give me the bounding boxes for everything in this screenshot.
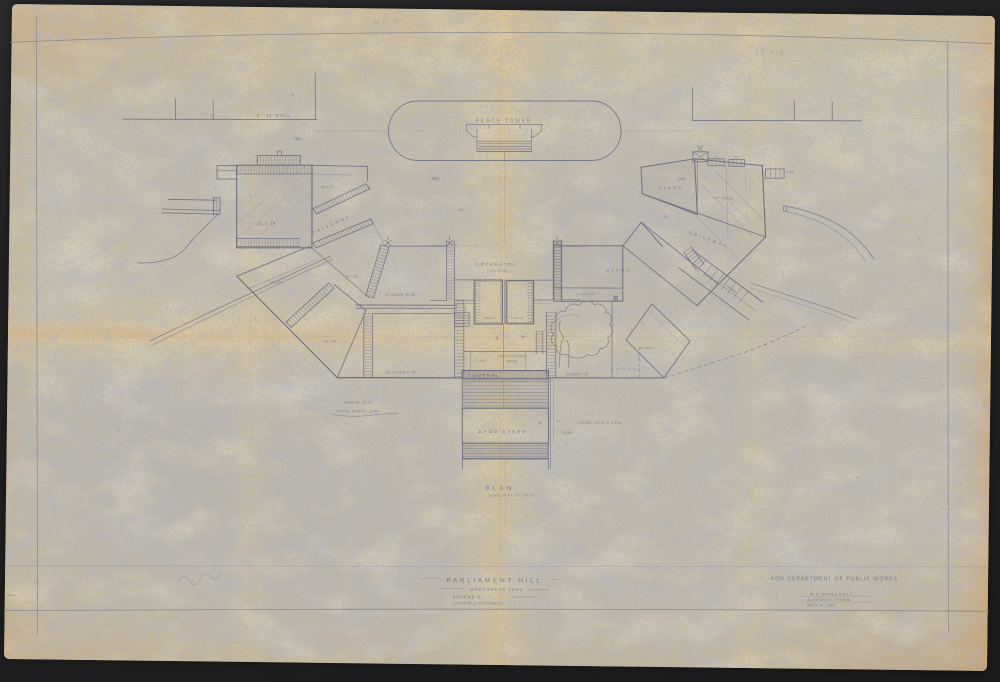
- svg-text:46 ELGIN ST. OTTAWA: 46 ELGIN ST. OTTAWA: [807, 598, 851, 602]
- svg-text:26': 26': [538, 421, 543, 425]
- svg-text:LINE OF EXISTING: LINE OF EXISTING: [498, 355, 527, 359]
- svg-text:72 x 12: 72 x 12: [475, 359, 487, 363]
- svg-text:DRIVEWAY: DRIVEWAY: [688, 230, 729, 250]
- svg-text:TRELLIS: TRELLIS: [511, 316, 523, 320]
- svg-text:BAND STAND: BAND STAND: [478, 429, 527, 434]
- svg-text:700: 700: [293, 137, 301, 142]
- svg-text:TOTAL SEATS 6384: TOTAL SEATS 6384: [578, 420, 623, 425]
- svg-text:10 x 28: 10 x 28: [270, 281, 282, 285]
- svg-text:TO STAND 27: TO STAND 27: [575, 292, 594, 296]
- svg-text:TOTAL SEATS 6384: TOTAL SEATS 6384: [335, 408, 380, 413]
- svg-text:SEATS 3192: SEATS 3192: [344, 400, 373, 405]
- svg-text:(100 PCS): (100 PCS): [487, 269, 508, 273]
- svg-text:TRELLIS: TRELLIS: [483, 316, 495, 320]
- svg-text:40': 40': [662, 214, 668, 220]
- svg-text:W. E. NOFFKE R.A.I.C.: W. E. NOFFKE R.A.I.C.: [810, 592, 854, 596]
- svg-text:20 ROWS K 32: 20 ROWS K 32: [386, 370, 416, 374]
- svg-text:(SCHEME 7 ATTACHED): (SCHEME 7 ATTACHED): [453, 602, 504, 606]
- svg-text:PEACE TOWER: PEACE TOWER: [476, 119, 533, 125]
- svg-text:FOR DEPARTMENT OF PUBLIC W: FOR DEPARTMENT OF PUBLIC WORKS: [771, 577, 898, 583]
- svg-text:SCALE 16 FT. TO 1 INCH: SCALE 16 FT. TO 1 INCH: [488, 493, 534, 497]
- svg-text:16 x 16: 16 x 16: [345, 275, 357, 279]
- svg-text:140: 140: [459, 208, 465, 212]
- svg-text:28 x 48: 28 x 48: [257, 221, 276, 226]
- svg-text:PLAN: PLAN: [486, 486, 515, 493]
- svg-text:SPECTACLE 1947: SPECTACLE 1947: [470, 587, 522, 592]
- svg-text:DRIVEWAY: DRIVEWAY: [311, 214, 352, 236]
- svg-text:E. 34 WALL: E. 34 WALL: [257, 113, 291, 118]
- svg-text:20 x 36: 20 x 36: [324, 340, 336, 344]
- svg-text:16': 16': [735, 155, 739, 159]
- svg-text:CONTROL: CONTROL: [468, 373, 501, 378]
- svg-text:11 7/8: 11 7/8: [755, 47, 786, 58]
- svg-text:16': 16': [715, 155, 719, 159]
- svg-text:18 ROWS @ 28: 18 ROWS @ 28: [385, 293, 416, 297]
- svg-text:36 x 10'-2": 36 x 10'-2": [639, 346, 653, 350]
- svg-text:16 x 12: 16 x 12: [321, 185, 333, 190]
- svg-text:STAIR: STAIR: [786, 170, 794, 174]
- svg-text:STAND: STAND: [507, 360, 518, 364]
- svg-text:SEPT 30, 1946: SEPT 30, 1946: [807, 603, 835, 607]
- svg-text:ORCHESTRA: ORCHESTRA: [476, 262, 518, 267]
- svg-text:PARLIAMENT HILL: PARLIAMENT HILL: [446, 577, 542, 584]
- svg-text:STAND: STAND: [606, 268, 632, 273]
- svg-text:7'6 MIN: 7'6 MIN: [562, 431, 574, 435]
- svg-text:SCHEME B: SCHEME B: [453, 595, 481, 600]
- svg-text:M P. ¾: M P. ¾: [373, 18, 401, 27]
- svg-text:360: 360: [431, 176, 439, 181]
- svg-text:30 ROWS K 28: 30 ROWS K 28: [566, 372, 588, 376]
